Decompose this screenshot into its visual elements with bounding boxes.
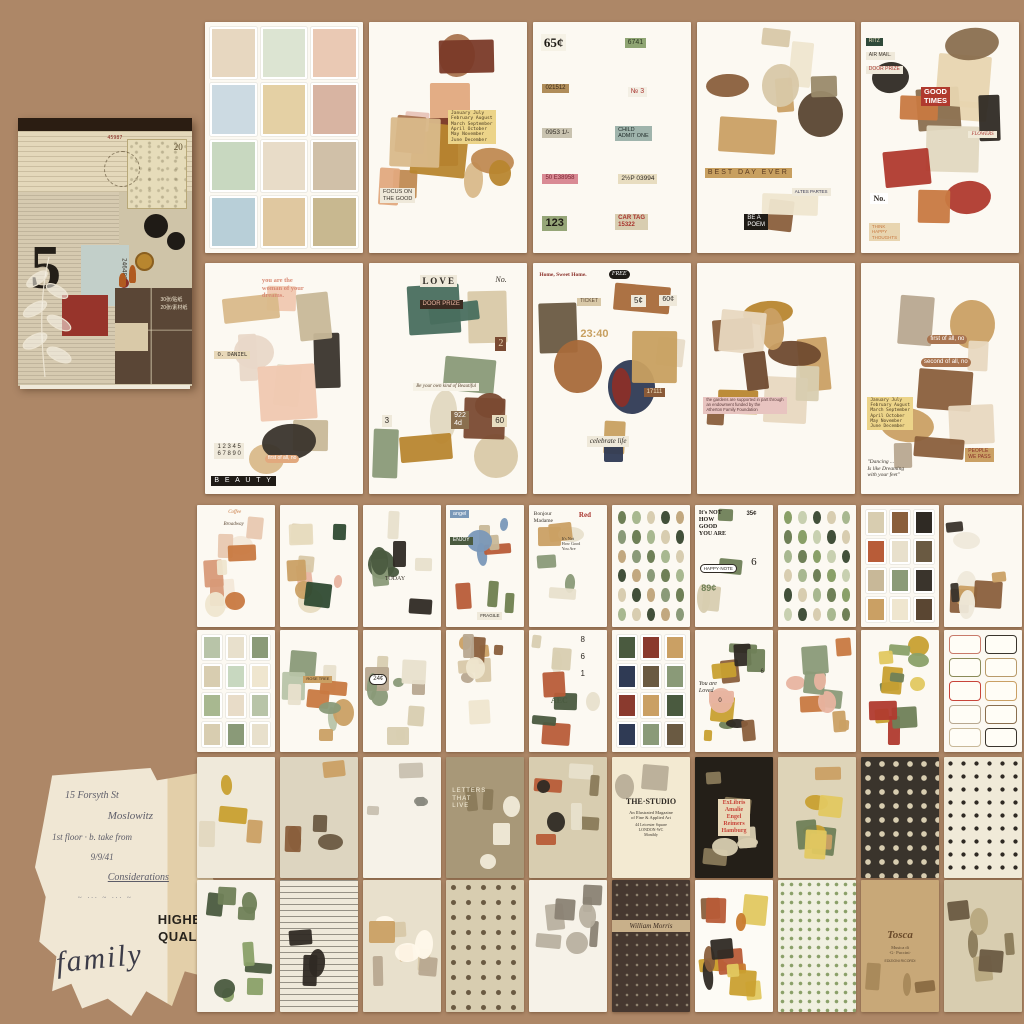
stamp-number: 20 [174, 142, 183, 152]
handwriting-line: 9/9/41 [91, 852, 114, 862]
sticker-text: second of all, no [921, 358, 971, 367]
sticker-text: Home, Sweet Home. [539, 272, 586, 278]
black-dot [167, 232, 185, 250]
sticker-text: CHILD ADMIT ONE [615, 126, 651, 141]
sticker-text: 922 4d [451, 411, 469, 430]
sticker-text: Tosca [887, 929, 913, 942]
ticket-scrap [115, 323, 148, 351]
paper-mushroom-print [280, 757, 358, 878]
paper-rabbits-pattern [446, 880, 524, 1012]
sticker-text: FRAGILE [477, 612, 502, 619]
notepad-cover: 20 45987 5 30张/贴纸 20张/素材纸 246480 [18, 118, 192, 386]
sheet-botanical-tags [197, 630, 275, 752]
sticker-text: first of all, no [265, 455, 299, 463]
sticker-text: 50 E38958 [542, 174, 577, 183]
black-dot [144, 214, 168, 238]
sheet-tags-24: 24¢ [363, 630, 441, 752]
sheet-wax-seals-ephemera: January July February August March Septe… [369, 22, 527, 253]
spec-text: 30张/贴纸 20张/素材纸 [160, 296, 187, 313]
sticker-text: 1 2 3 4 5 6 7 8 9 0 [214, 443, 243, 459]
sticker-text: 6 [751, 556, 757, 569]
sheet-aec-ledger: 861AEC [529, 630, 607, 752]
sheet-beauty-collage: you are the woman of your dreams.O. DANI… [205, 263, 363, 494]
sheet-poster-stamps [612, 630, 690, 752]
sheet-good-times: RITZAIR MAIL.DOOR PRIZEGOOD TIMESFLOWERS… [861, 22, 1019, 253]
paper-butterfly-chart [695, 880, 773, 1012]
paper-tosca: ToscaMusica di ·G· Puccini·EDIZIONI RICO… [861, 880, 939, 1012]
sheet-today-notes: TODAY [363, 505, 441, 627]
sheet-first-of-all-no: first of all, nosecond of all, noJanuary… [861, 263, 1019, 494]
handwriting-line: 15 Forsyth St [65, 790, 119, 801]
notepad-page-edge [20, 385, 190, 389]
sheet-home-sweet-home: Home, Sweet Home.FREETICKET5¢60¢23:40171… [533, 263, 691, 494]
sticker-text: L O V E [420, 275, 457, 288]
sticker-text: 123 [542, 216, 566, 231]
sticker-text: angel [450, 510, 469, 518]
sheet-angel-enjoy-labels: angelENJOYFRAGILE [446, 505, 524, 627]
sticker-text: 65¢ [541, 34, 567, 51]
sheet-love-stamps: L O V ENo.DOOR PRIZE2Be your own kind of… [369, 263, 527, 494]
sticker-text: 6 [580, 652, 584, 661]
sticker-text: 24¢ [369, 674, 387, 685]
sticker-text: BE A POEM [744, 214, 768, 230]
sheet-flower-fairies [778, 630, 856, 752]
sticker-text: 6741 [625, 38, 647, 48]
sticker-text: 60¢ [659, 295, 677, 305]
sticker-text: GOOD TIMES [921, 87, 950, 107]
sheet-bonjour-red: Bonjour MadameRedIt's Not How Good You A… [529, 505, 607, 627]
sticker-sheets-row-4: ROSE TREE24¢861AECYou are Loved60 [197, 630, 1022, 752]
sheet-its-not-how-good: It's NOT HOW GOOD YOU ARE35¢HAPPY·NOTE68… [695, 505, 773, 627]
sheet-kraft-collage [446, 630, 524, 752]
sticker-text: ALTES PARTES [792, 188, 831, 195]
paper-the-studio: THE·STUDIOAn Illustrated Magazine of Fin… [612, 757, 690, 878]
sticker-text: January July February August March Septe… [867, 397, 913, 430]
paper-sheet-music [280, 880, 358, 1012]
sticker-text: 23:40 [580, 328, 608, 341]
sticker-text: 44 Leicester Square LONDON·WC Monthly [635, 823, 667, 837]
paper-william-morris: William Morris [612, 880, 690, 1012]
sheet-collage-scraps [280, 505, 358, 627]
paper-exlibris: ExLibris Amalie Engel Reimers Hamburg [695, 757, 773, 878]
handwriting-line: ~ ··· ~ ··· ~ [78, 894, 133, 902]
sticker-text: Bonjour Madame [534, 511, 553, 524]
sheet-botanical-bird: ROSE TREE [280, 630, 358, 752]
paper-green-ditsy [778, 880, 856, 1012]
sheet-round-dot-stickers [612, 505, 690, 627]
sticker-text: TODAY [385, 576, 405, 583]
sticker-text: THINK HAPPY THOUGHTS [869, 223, 900, 241]
sticker-text: TICKET [577, 298, 601, 306]
sticker-sheets-row-5: LETTERS THAT LIVETHE·STUDIOAn Illustrate… [197, 757, 1022, 878]
sticker-sheets-row-2: you are the woman of your dreams.O. DANI… [205, 263, 1019, 494]
sticker-text: William Morris [612, 920, 690, 932]
sticker-text: № 3 [628, 87, 647, 97]
mushroom-icon [119, 273, 126, 287]
sticker-text: you are the woman of your dreams. [262, 277, 304, 300]
sticker-text: DOOR PRIZE [420, 300, 463, 309]
sticker-text: Be your own kind of Beautiful [413, 383, 479, 391]
sticker-text: FREE [609, 270, 630, 279]
sticker-text: 5¢ [631, 295, 646, 306]
sticker-text: 17111 [644, 388, 666, 397]
paper-receipts-collage [363, 880, 441, 1012]
sticker-text: celebrate life [587, 436, 630, 446]
paper-letters-that-live: LETTERS THAT LIVE [446, 757, 524, 878]
serial-number: 45987 [107, 136, 122, 142]
sticker-text: 35¢ [746, 511, 756, 518]
sticker-text: ExLibris Amalie Engel Reimers Hamburg [718, 799, 749, 836]
sheet-vintage-tickets: 65¢6741021512№ 30953 1/-CHILD ADMIT ONE5… [533, 22, 691, 253]
sticker-text: 89¢ [701, 583, 716, 594]
sticker-text: AEC [551, 696, 568, 705]
sheet-seals-and-tags: the gardens are supported in part throug… [697, 263, 855, 494]
paper-dragonflies [944, 880, 1022, 1012]
sticker-text: 1 [580, 669, 584, 678]
sticker-text: DOOR PRIZE [866, 66, 903, 74]
paper-pressed-flowers [778, 757, 856, 878]
sheet-blank-labels [944, 630, 1022, 752]
sticker-text: Broadway [224, 522, 244, 528]
gold-coin-icon [135, 252, 154, 271]
sticker-text: 3 [382, 415, 392, 426]
sheet-round-dot-stickers-2 [778, 505, 856, 627]
sticker-text: An Illustrated Magazine of Fine & Applie… [629, 810, 673, 821]
notepad-binding [18, 118, 192, 131]
sticker-text: You are Loved [699, 681, 717, 695]
sticker-text: B E A U T Y [211, 476, 276, 486]
sticker-text: PEOPLE WE PASS [965, 448, 993, 462]
sheet-framed-animals [861, 505, 939, 627]
sticker-text: 021512 [542, 84, 568, 93]
paper-ferns [197, 880, 275, 1012]
sticker-text: FLOWERS [968, 131, 996, 139]
sticker-text: No. [495, 275, 506, 284]
signature: family [55, 937, 145, 980]
sheet-butterflies-loved: You are Loved60 [695, 630, 773, 752]
paper-line-flowers [363, 757, 441, 878]
sticker-text: 0 [718, 698, 721, 705]
sticker-text: 6 [761, 669, 764, 676]
sheet-animal-sketches [944, 505, 1022, 627]
paper-engravings-page [529, 880, 607, 1012]
sticker-text: 2½P 03994 [618, 174, 657, 184]
sticker-text: "Dancing ... Is like Dreaming with your … [867, 459, 904, 478]
sticker-text: Coffee [228, 510, 241, 516]
sheet-children-illustrations [205, 22, 363, 253]
sticker-text: HAPPY·NOTE [700, 564, 737, 573]
sticker-text: the gardens are supported in part throug… [703, 397, 786, 414]
paper-raindrops [944, 757, 1022, 878]
product-collage: 20 45987 5 30张/贴纸 20张/素材纸 246480 [0, 0, 1024, 1024]
sheet-wildflowers [861, 630, 939, 752]
sticker-text: LETTERS THAT LIVE [452, 788, 486, 809]
postmark-icon [104, 151, 140, 187]
sticker-text: THE·STUDIO [626, 797, 676, 806]
sticker-sheets-row-3: CoffeeBroadwayTODAYangelENJOYFRAGILEBonj… [197, 505, 1022, 627]
sheet-label-frames: CoffeeBroadway [197, 505, 275, 627]
sticker-text: AIR MAIL. [866, 52, 895, 60]
handwriting-line: Considerations [108, 872, 169, 883]
sticker-text: EDIZIONI RICORDI [885, 959, 916, 963]
sticker-text: 2 [495, 337, 506, 351]
sheet-kraft-ephemera: BEST DAY EVERBE A POEMALTES PARTES [697, 22, 855, 253]
handwriting-line: Moslowitz [108, 810, 153, 822]
sticker-text: 0953 1/- [542, 128, 572, 138]
sticker-text: 60 [492, 415, 507, 426]
leaf-sketch-icon [18, 249, 85, 379]
sticker-text: Red [579, 511, 591, 519]
sticker-text: It's NOT HOW GOOD YOU ARE [699, 510, 726, 538]
paper-collage-black-dots [529, 757, 607, 878]
sticker-text: RITZ [866, 38, 883, 46]
sticker-text: CAR TAG 15322 [615, 214, 648, 230]
sticker-text: O. DANIEL [214, 351, 250, 359]
sticker-text: FOCUS ON THE GOOD [380, 188, 415, 203]
sticker-sheets-row-6: William MorrisToscaMusica di ·G· Puccini… [197, 880, 1022, 1012]
sticker-text: It's Not How Good You Are [562, 537, 581, 552]
mushroom-icon [129, 265, 136, 283]
paper-dark-leaves [861, 757, 939, 878]
sticker-text: BEST DAY EVER [705, 168, 792, 178]
sticker-text: No. [870, 193, 888, 204]
sticker-text: ROSE TREE [303, 676, 332, 683]
sticker-text: 8 [580, 635, 584, 644]
sticker-text: Musica di ·G· Puccini· [889, 945, 911, 956]
sticker-sheets-row-1: January July February August March Septe… [205, 22, 1019, 253]
sticker-text: ENJOY [450, 537, 473, 545]
sticker-text: January July February August March Septe… [448, 110, 496, 144]
sticker-text: first of all, no [927, 335, 967, 344]
handwriting-line: 1st floor · b. take from [52, 832, 132, 842]
notepad-cover-collage: 20 45987 5 30张/贴纸 20张/素材纸 246480 [18, 131, 192, 384]
paper-gold-peony [197, 757, 275, 878]
